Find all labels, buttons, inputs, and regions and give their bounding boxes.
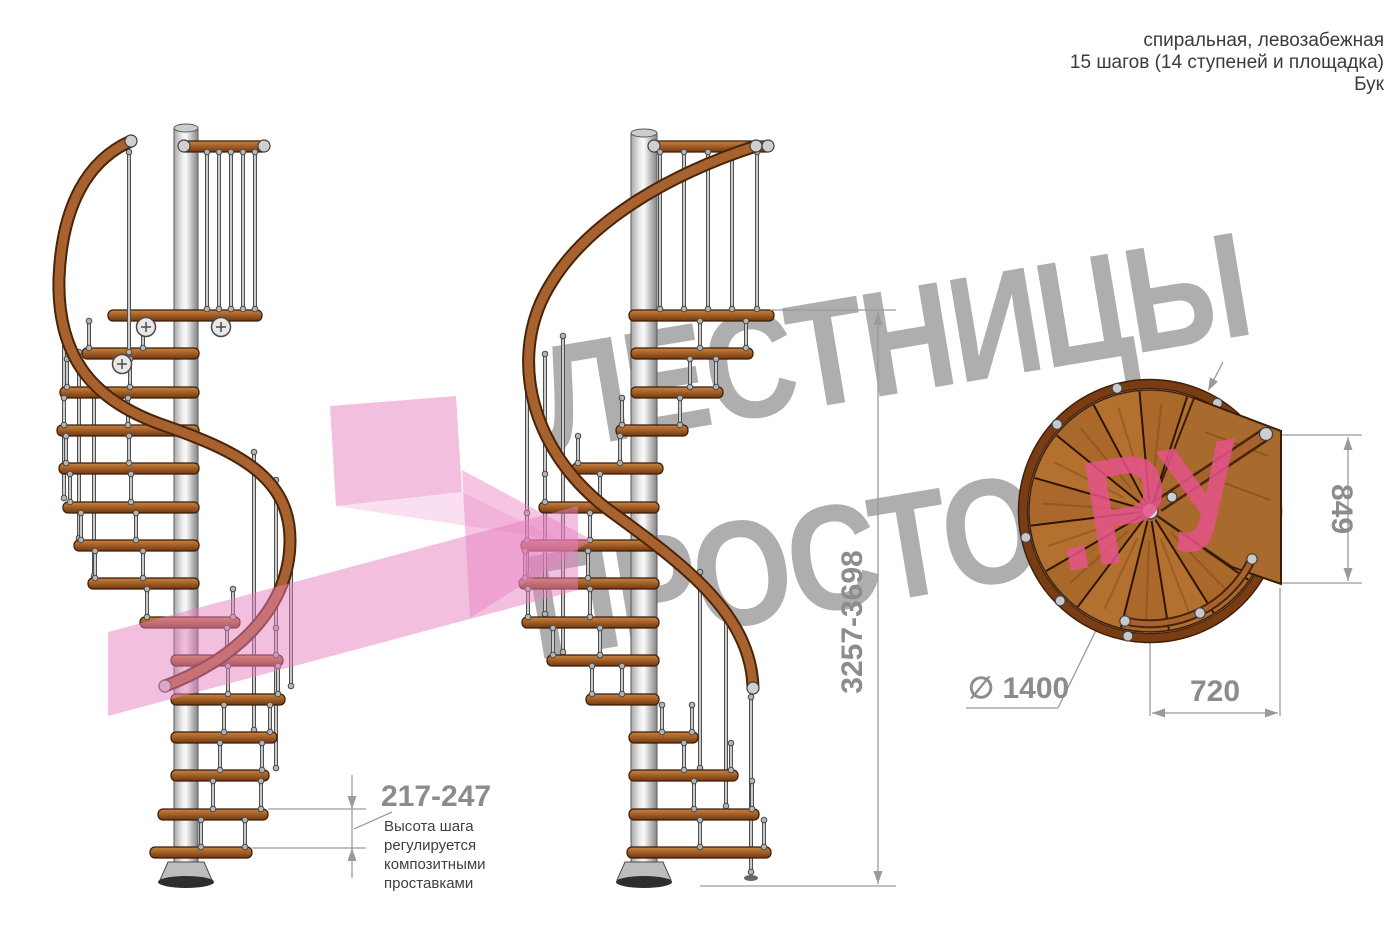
rod-knob	[63, 460, 69, 466]
rod-knob	[216, 306, 222, 312]
rod-knob	[221, 702, 227, 708]
rod-knob	[230, 586, 236, 592]
rail-end-cap	[762, 140, 774, 152]
rod-knob	[140, 575, 146, 581]
total-height-dimension: 3257-3698	[836, 550, 869, 693]
step-height-dimension: 217-247	[381, 780, 491, 813]
rail-end-cap	[178, 140, 190, 152]
pole-cap	[631, 129, 657, 137]
rod-knob	[728, 740, 734, 746]
rod-knob	[597, 471, 603, 477]
rod-knob	[697, 345, 703, 351]
rod-knob	[126, 460, 132, 466]
rod-knob	[749, 778, 755, 784]
rod-knob	[589, 663, 595, 669]
rod-knob	[127, 384, 133, 390]
rod-knob	[542, 499, 548, 505]
plan-rail-fitting	[1120, 616, 1130, 626]
dimension-arrowhead	[348, 848, 357, 861]
drawing-sheet: спиральная, левозабежная 15 шагов (14 ст…	[0, 0, 1400, 949]
rod-knob	[749, 806, 755, 812]
rod-knob	[204, 306, 210, 312]
landing-platform	[108, 310, 262, 321]
rod-knob	[273, 765, 279, 771]
rod-knob	[217, 740, 223, 746]
step-height-note-line3: композитными	[384, 856, 486, 873]
rod-knob	[560, 649, 566, 655]
left-elevation-view	[57, 124, 294, 888]
plan-rail-end-cap	[1260, 428, 1273, 441]
rod-knob	[560, 333, 566, 339]
dimension-arrowhead	[1344, 437, 1353, 450]
rod-knob	[198, 817, 204, 823]
rod-knob	[542, 611, 548, 617]
rod-knob	[587, 614, 593, 620]
rod-knob	[761, 817, 767, 823]
rod-knob	[587, 510, 593, 516]
rod-knob	[689, 729, 695, 735]
rod-knob	[258, 806, 264, 812]
plan-baluster-fitting	[1112, 383, 1122, 393]
rod-knob	[242, 817, 248, 823]
rod-knob	[743, 318, 749, 324]
handrail-end-cap	[747, 682, 759, 694]
handrail-leader-arrowhead	[1208, 377, 1218, 391]
rod-knob	[251, 449, 257, 455]
pole-base-plate	[158, 876, 214, 888]
rod-knob	[275, 691, 281, 697]
rod-knob	[78, 537, 84, 543]
rod-knob	[216, 149, 222, 155]
watermark-word-bottom: ПРОСТО	[514, 442, 1051, 692]
rod-knob	[144, 614, 150, 620]
rod-knob	[681, 740, 687, 746]
rod-knob	[525, 614, 531, 620]
rod-knob	[258, 778, 264, 784]
rod-knob	[619, 395, 625, 401]
rod-knob	[217, 767, 223, 773]
rod-knob	[617, 460, 623, 466]
plan-baluster-fitting	[1055, 596, 1065, 606]
rod-knob	[128, 499, 134, 505]
rod-knob	[681, 306, 687, 312]
rod-knob	[92, 575, 98, 581]
step-height-note-line1: Высота шага	[384, 818, 474, 835]
rod-knob	[86, 318, 92, 324]
rod-knob	[587, 586, 593, 592]
rail-end-cap	[258, 140, 270, 152]
handrail-end-cap	[750, 140, 762, 152]
rod-knob	[140, 548, 146, 554]
rod-knob	[729, 306, 735, 312]
rod-knob	[550, 652, 556, 658]
rod-knob	[267, 702, 273, 708]
rod-knob	[754, 306, 760, 312]
rod-knob	[617, 433, 623, 439]
rod-knob	[64, 384, 70, 390]
rod-knob	[225, 691, 231, 697]
rod-knob	[221, 729, 227, 735]
rod-knob	[198, 844, 204, 850]
rod-knob	[657, 149, 663, 155]
pink-arrow-block	[330, 396, 462, 506]
pole-base-plate	[616, 876, 672, 888]
rod-knob	[542, 351, 548, 357]
rod-knob	[63, 433, 69, 439]
tread-step	[631, 387, 723, 398]
plan-rail-fitting	[1195, 608, 1205, 618]
rod-knob	[713, 356, 719, 362]
rod-knob	[713, 384, 719, 390]
rod-knob	[259, 740, 265, 746]
rod-knob	[240, 149, 246, 155]
rod-knob	[575, 433, 581, 439]
rod-knob	[705, 306, 711, 312]
rod-knob	[575, 460, 581, 466]
rod-knob	[288, 683, 294, 689]
rod-knob	[252, 149, 258, 155]
dimension-arrowhead	[1152, 709, 1165, 718]
rod-knob	[619, 691, 625, 697]
rod-knob	[204, 149, 210, 155]
rod-knob	[705, 149, 711, 155]
rod-knob	[681, 149, 687, 155]
landing-width-dimension: 720	[1190, 675, 1240, 708]
rod-knob	[252, 306, 258, 312]
rod-knob	[697, 817, 703, 823]
pole-cap	[174, 124, 198, 132]
rod-knob	[681, 767, 687, 773]
rod-knob	[697, 318, 703, 324]
rod-knob	[125, 422, 131, 428]
rod-knob	[126, 433, 132, 439]
rod-knob	[61, 422, 67, 428]
rod-knob	[126, 349, 132, 355]
rod-knob	[689, 702, 695, 708]
rod-knob	[210, 806, 216, 812]
rod-knob	[585, 548, 591, 554]
rod-knob	[240, 306, 246, 312]
rod-knob	[144, 586, 150, 592]
baluster-foot	[744, 875, 758, 881]
rod-knob	[61, 495, 67, 501]
rod-knob	[697, 844, 703, 850]
rod-knob	[86, 345, 92, 351]
rod-knob	[743, 345, 749, 351]
rod-knob	[242, 844, 248, 850]
rod-knob	[659, 729, 665, 735]
rod-knob	[61, 395, 67, 401]
plan-baluster-fitting	[1052, 419, 1062, 429]
rod-knob	[542, 471, 548, 477]
rod-knob	[691, 806, 697, 812]
rod-knob	[267, 729, 273, 735]
watermark-word-domain: .РУ	[1040, 407, 1257, 604]
rod-knob	[748, 694, 754, 700]
step-height-note-line4: проставками	[384, 875, 473, 892]
rod-knob	[210, 778, 216, 784]
rod-knob	[140, 345, 146, 351]
dimension-arrowhead	[874, 871, 883, 884]
rod-knob	[597, 652, 603, 658]
rod-knob	[761, 844, 767, 850]
rod-knob	[67, 499, 73, 505]
plan-baluster-fitting	[1123, 631, 1133, 641]
rod-knob	[589, 691, 595, 697]
rod-knob	[657, 306, 663, 312]
rod-knob	[687, 384, 693, 390]
rod-knob	[585, 575, 591, 581]
landing-depth-dimension: 849	[1325, 484, 1358, 534]
staircase-drawing: ЛЕСТНИЦЫ ПРОСТО 217-247 Высота шага регу…	[0, 0, 1400, 949]
rod-knob	[550, 625, 556, 631]
rod-knob	[677, 422, 683, 428]
rod-knob	[92, 548, 98, 554]
tread-step	[547, 655, 659, 666]
rod-knob	[259, 767, 265, 773]
handrail-end-cap	[125, 135, 137, 147]
rod-knob	[748, 869, 754, 875]
rod-knob	[691, 778, 697, 784]
plan-baluster-fitting	[1021, 532, 1031, 542]
dimension-arrowhead	[1265, 709, 1278, 718]
dimension-arrowhead	[348, 796, 357, 809]
rod-knob	[128, 471, 134, 477]
diameter-dimension: ∅ 1400	[968, 672, 1069, 705]
rod-knob	[228, 306, 234, 312]
rod-knob	[723, 803, 729, 809]
rod-knob	[228, 149, 234, 155]
rod-knob	[78, 510, 84, 516]
rod-knob	[125, 395, 131, 401]
rod-knob	[619, 663, 625, 669]
rod-knob	[677, 395, 683, 401]
rod-knob	[597, 625, 603, 631]
rod-knob	[619, 422, 625, 428]
dimension-arrowhead	[1344, 568, 1353, 581]
rod-knob	[67, 471, 73, 477]
rod-knob	[133, 537, 139, 543]
rod-knob	[728, 767, 734, 773]
rod-knob	[687, 356, 693, 362]
step-height-note-line2: регулируется	[384, 837, 476, 854]
rod-knob	[133, 510, 139, 516]
rod-knob	[659, 702, 665, 708]
